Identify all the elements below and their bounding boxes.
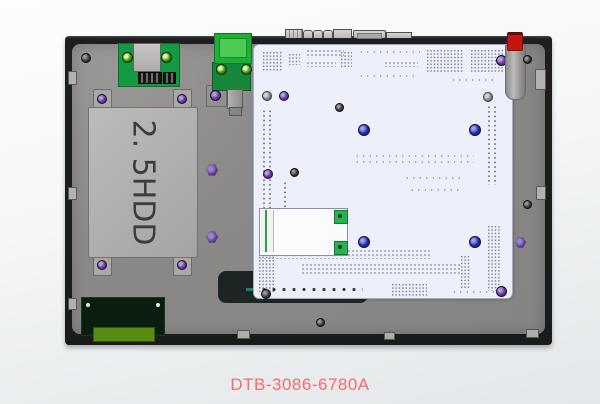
terminal-block-inner bbox=[219, 38, 247, 58]
hdd-bracket: 2. 5HDD bbox=[88, 107, 198, 258]
screw bbox=[335, 103, 344, 112]
terminal-block bbox=[214, 33, 252, 64]
pcb-pad-cluster bbox=[306, 61, 336, 67]
mounting-foot bbox=[526, 329, 539, 338]
pcb-pad-cluster bbox=[409, 187, 459, 195]
screw bbox=[81, 53, 91, 63]
screw bbox=[216, 64, 227, 75]
antenna-post bbox=[505, 45, 526, 100]
io-port-icon bbox=[333, 29, 352, 38]
screw bbox=[338, 245, 342, 249]
pin-header bbox=[163, 72, 176, 84]
io-port-pins bbox=[286, 30, 302, 38]
pcb-pad-cluster bbox=[426, 49, 464, 73]
pcb-pad-cluster bbox=[460, 255, 471, 289]
screw bbox=[177, 260, 187, 270]
header-pins bbox=[164, 73, 175, 83]
screw bbox=[177, 94, 187, 104]
screw bbox=[316, 318, 325, 327]
header-pins bbox=[139, 73, 161, 83]
pcb-pad-cluster bbox=[358, 49, 420, 57]
hdd-bracket-label: 2. 5HDD bbox=[126, 119, 161, 245]
pcb-pad-cluster bbox=[301, 263, 461, 276]
screw bbox=[161, 52, 172, 63]
pcb-pad-cluster bbox=[450, 77, 494, 83]
msata-mount-tab bbox=[334, 210, 348, 224]
screw bbox=[290, 168, 299, 177]
daughterboard-pcb bbox=[118, 43, 180, 87]
pcb-pad-cluster bbox=[306, 49, 344, 57]
audio-jack-icon bbox=[313, 30, 323, 38]
edge-clip bbox=[536, 186, 546, 200]
pcb-pad-cluster bbox=[358, 73, 414, 79]
screw bbox=[122, 52, 133, 63]
pcb-pad-cluster bbox=[354, 153, 474, 163]
red-cap bbox=[507, 32, 523, 51]
msata-connector bbox=[261, 210, 274, 252]
screw bbox=[261, 289, 271, 299]
vga-port-inner bbox=[357, 33, 382, 39]
solder-dot bbox=[86, 303, 90, 307]
io-port-icon bbox=[386, 32, 412, 38]
screw bbox=[483, 92, 493, 102]
solder-dot bbox=[156, 303, 160, 307]
pcb-pad-cluster bbox=[340, 51, 352, 69]
screw bbox=[496, 286, 507, 297]
screw bbox=[338, 214, 342, 218]
render-canvas: 2. 5HDD bbox=[0, 0, 600, 404]
screw bbox=[210, 90, 221, 101]
edge-clip bbox=[68, 187, 77, 200]
screw bbox=[469, 124, 481, 136]
screw bbox=[523, 55, 532, 64]
screw bbox=[241, 64, 252, 75]
mounting-foot bbox=[237, 330, 250, 339]
audio-jack-icon bbox=[323, 30, 333, 38]
connector-latch-tip bbox=[229, 107, 242, 116]
pin-header bbox=[138, 72, 162, 84]
screw bbox=[263, 169, 273, 179]
pcb-pad-cluster bbox=[262, 51, 282, 71]
screw bbox=[358, 124, 370, 136]
pcb-pad-cluster bbox=[404, 175, 464, 183]
edge-clip bbox=[68, 298, 77, 310]
chassis-rear-view: 2. 5HDD bbox=[65, 36, 552, 345]
screw bbox=[97, 94, 107, 104]
screw bbox=[358, 236, 370, 248]
mounting-foot bbox=[384, 332, 395, 340]
screw bbox=[523, 200, 532, 209]
pcb-pad-cluster bbox=[384, 61, 418, 67]
pcb-pad-cluster bbox=[487, 225, 501, 291]
msata-mount-tab bbox=[334, 241, 348, 255]
motherboard bbox=[253, 44, 513, 299]
pcb-pad-cluster bbox=[288, 53, 300, 65]
pcb-pad-cluster bbox=[391, 283, 427, 296]
connector-latch bbox=[227, 89, 243, 109]
edge-clip bbox=[68, 71, 77, 85]
pcb-pad-cluster bbox=[486, 105, 498, 185]
part-number-caption: DTB-3086-6780A bbox=[10, 375, 590, 395]
screw bbox=[279, 91, 289, 101]
pcb-pad-cluster bbox=[261, 109, 272, 211]
screw bbox=[262, 91, 272, 101]
vga-port-icon bbox=[353, 30, 386, 38]
socket-connector bbox=[133, 43, 161, 72]
msata-connector-key bbox=[265, 210, 267, 252]
bottom-edge-connector bbox=[93, 327, 155, 342]
screw bbox=[97, 260, 107, 270]
pcb-pad-cluster bbox=[282, 181, 288, 211]
audio-jack-icon bbox=[303, 30, 313, 38]
screw bbox=[469, 236, 481, 248]
msata-module bbox=[259, 208, 348, 256]
io-port-icon bbox=[285, 29, 303, 38]
edge-clip bbox=[535, 69, 546, 90]
pcb-pad-cluster bbox=[259, 285, 363, 296]
